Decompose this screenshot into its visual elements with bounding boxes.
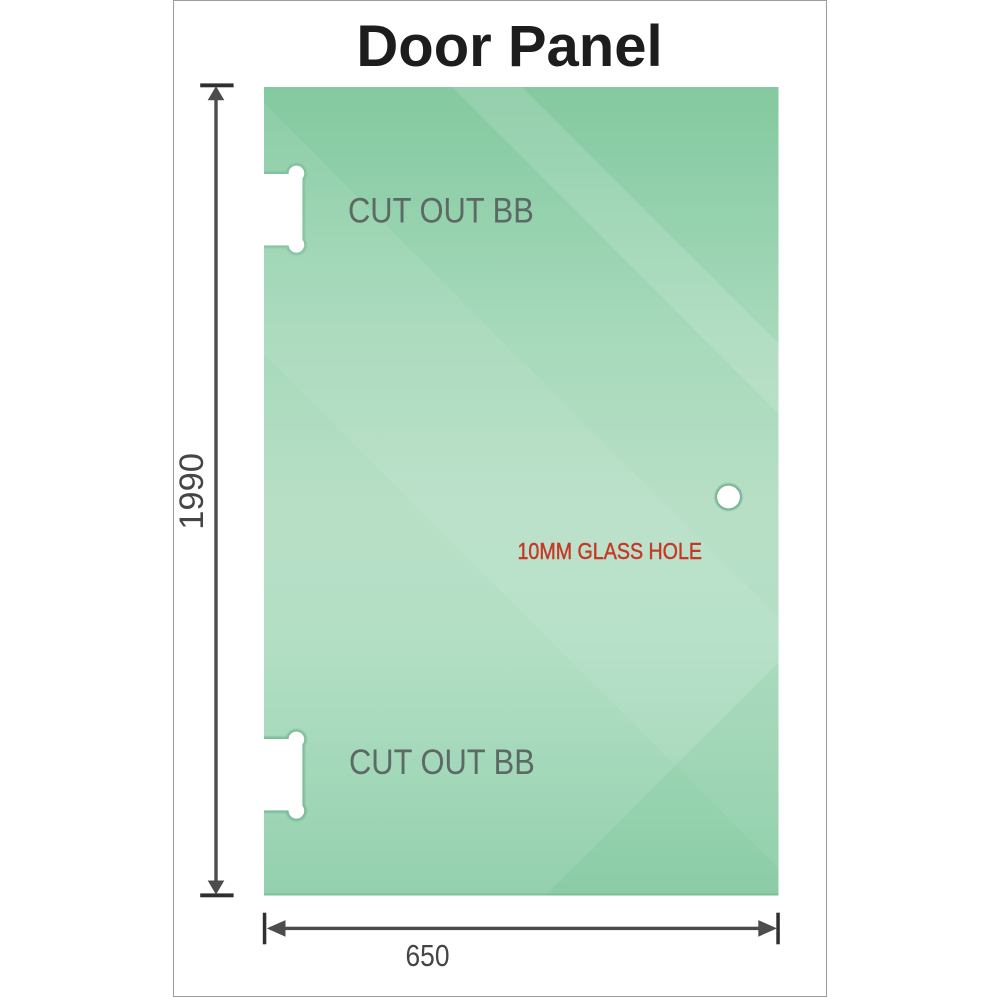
svg-text:650: 650	[406, 939, 450, 973]
svg-text:CUT OUT BB: CUT OUT BB	[348, 192, 534, 231]
svg-text:Door Panel: Door Panel	[356, 14, 662, 79]
svg-text:CUT OUT BB: CUT OUT BB	[349, 743, 535, 782]
svg-text:10MM GLASS HOLE: 10MM GLASS HOLE	[518, 539, 703, 565]
svg-text:1990: 1990	[173, 453, 211, 530]
